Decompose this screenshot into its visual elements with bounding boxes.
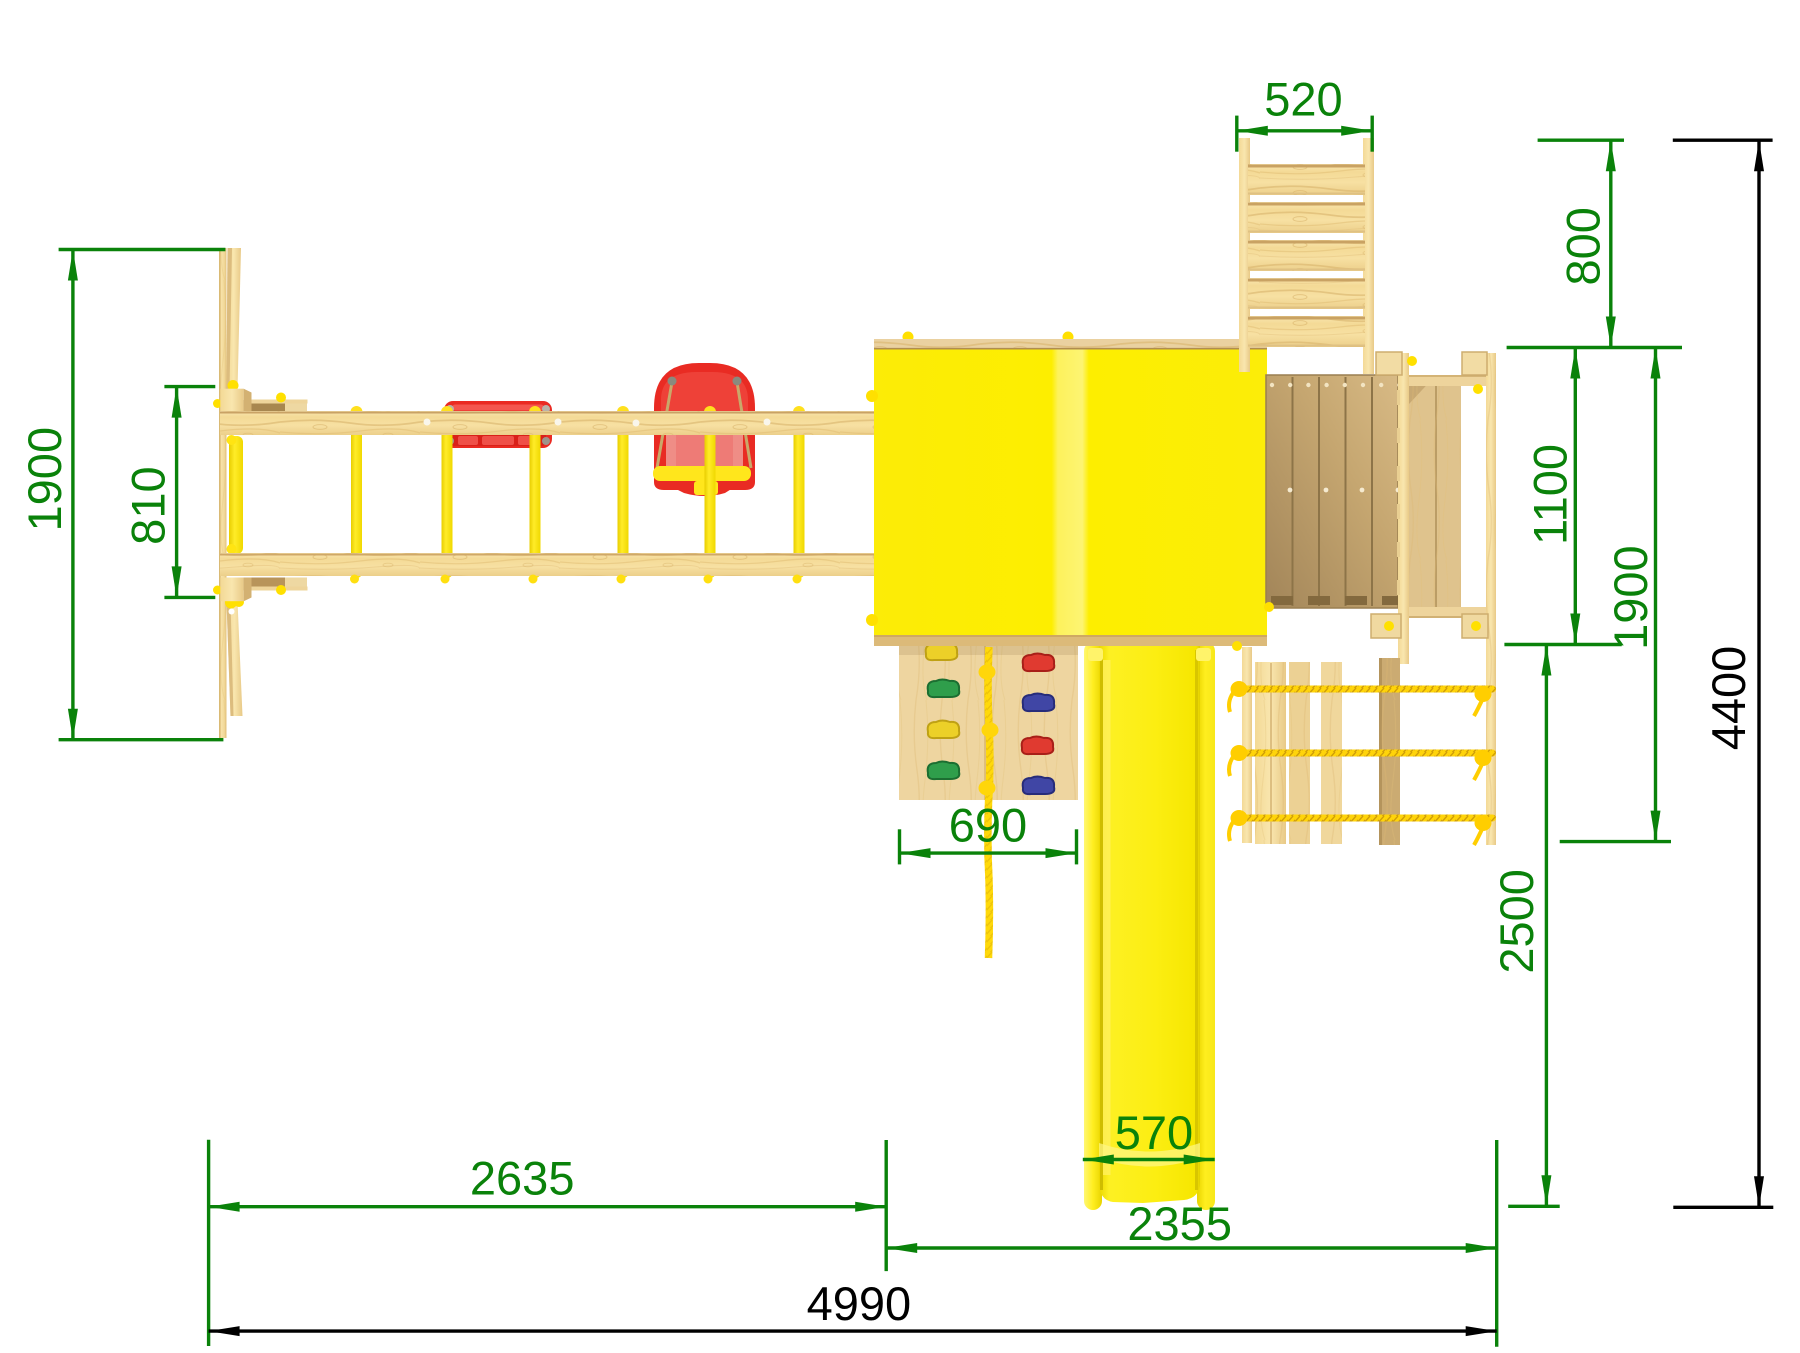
svg-text:4990: 4990 [807,1277,912,1330]
svg-text:2500: 2500 [1490,869,1543,974]
svg-text:520: 520 [1264,72,1342,125]
svg-text:1100: 1100 [1523,444,1576,545]
svg-text:800: 800 [1557,207,1610,285]
svg-text:2355: 2355 [1127,1197,1232,1250]
svg-text:2635: 2635 [470,1151,575,1204]
svg-text:1900: 1900 [1604,545,1657,650]
svg-text:1900: 1900 [18,427,71,532]
svg-text:810: 810 [122,466,175,544]
svg-text:690: 690 [949,799,1027,852]
svg-text:570: 570 [1115,1106,1193,1159]
svg-text:4400: 4400 [1702,646,1755,751]
